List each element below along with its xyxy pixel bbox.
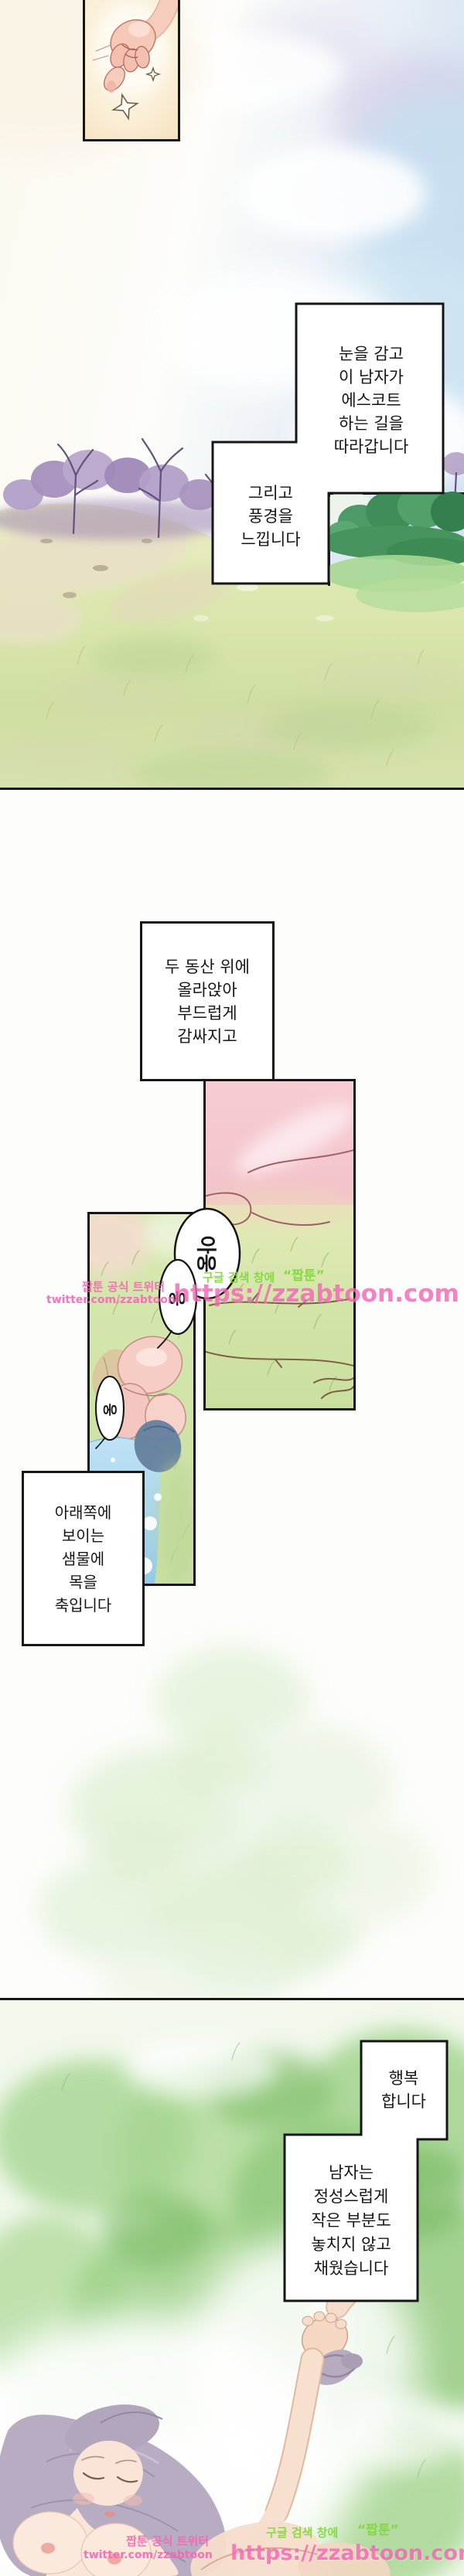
hand-panel (83, 0, 180, 141)
caption-line: 감싸지고 (177, 1025, 237, 1048)
caption-box-spring: 아래쪽에 보이는 샘물에 목을 축입니다 (22, 1471, 145, 1646)
caption-line: 올라앉아 (177, 978, 237, 1002)
caption-line: 따라갑니다 (334, 435, 409, 458)
watermark-search-hint: 구글 검색 창에 (266, 2527, 338, 2539)
watermark-twitter-url: twitter.com/zzabtoon (84, 2550, 213, 2561)
caption-line: 채웠습니다 (314, 2257, 389, 2281)
caption-line: 하는 길을 (339, 412, 404, 435)
webtoon-page: 눈을 감고 이 남자가 에스코트 하는 길을 따라갑니다 그리고 풍경을 느낍니… (0, 0, 464, 2576)
caption-line: 이 남자가 (339, 366, 404, 389)
caption-box-hills: 두 동산 위에 올라앉아 부드럽게 감싸지고 (140, 921, 275, 1081)
caption-line: 목을 (69, 1570, 97, 1594)
scene1-bottom-border (0, 788, 464, 790)
caption-line: 에스코트 (341, 389, 401, 412)
caption-line: 풍경을 (248, 505, 293, 528)
watermark-official-label: 짭툰 공식 트위터 (126, 2536, 209, 2547)
caption-line: 그리고 (248, 482, 293, 505)
caption-devotion: 남자는 정성스럽게 작은 부분도 놓치지 않고 채웠습니다 (287, 2155, 415, 2286)
caption-line: 정성스럽게 (314, 2185, 389, 2209)
watermark-search-term: “짭툰” (357, 2524, 399, 2537)
caption-line: 눈을 감고 (339, 342, 404, 366)
caption-line: 보이는 (62, 1524, 104, 1547)
watermark-twitter-url: twitter.com/zzabtoon (46, 1295, 176, 1305)
caption-line: 놓치지 않고 (311, 2233, 391, 2257)
caption-scenery: 그리고 풍경을 느낍니다 (219, 473, 322, 560)
watermark-official-label: 짭툰 공식 트위터 (82, 1281, 165, 1293)
caption-line: 아래쪽에 (55, 1501, 112, 1524)
caption-line: 샘물에 (62, 1547, 104, 1570)
caption-line: 남자는 (329, 2161, 374, 2185)
caption-line: 부드럽게 (177, 1002, 237, 1025)
hand-panel-art (85, 0, 178, 139)
caption-line: 작은 부분도 (311, 2209, 391, 2233)
caption-happy: 행복 합니다 (363, 2056, 445, 2124)
caption-line: 느낍니다 (241, 528, 300, 551)
caption-line: 두 동산 위에 (165, 955, 250, 978)
caption-line: 축입니다 (55, 1594, 112, 1617)
caption-line: 합니다 (381, 2090, 426, 2113)
watermark-site-url: https://zzabtoon.com (173, 1282, 459, 1306)
speech-bubble-text: 웅 (95, 1379, 125, 1441)
faint-foliage-art (0, 1608, 464, 2009)
scene3-top-border (0, 1998, 464, 2000)
watermark-site-url: https://zzabtoon.com (230, 2543, 464, 2564)
caption-escort: 눈을 감고 이 남자가 에스코트 하는 길을 따라갑니다 (302, 328, 440, 472)
caption-line: 행복 (389, 2067, 419, 2090)
